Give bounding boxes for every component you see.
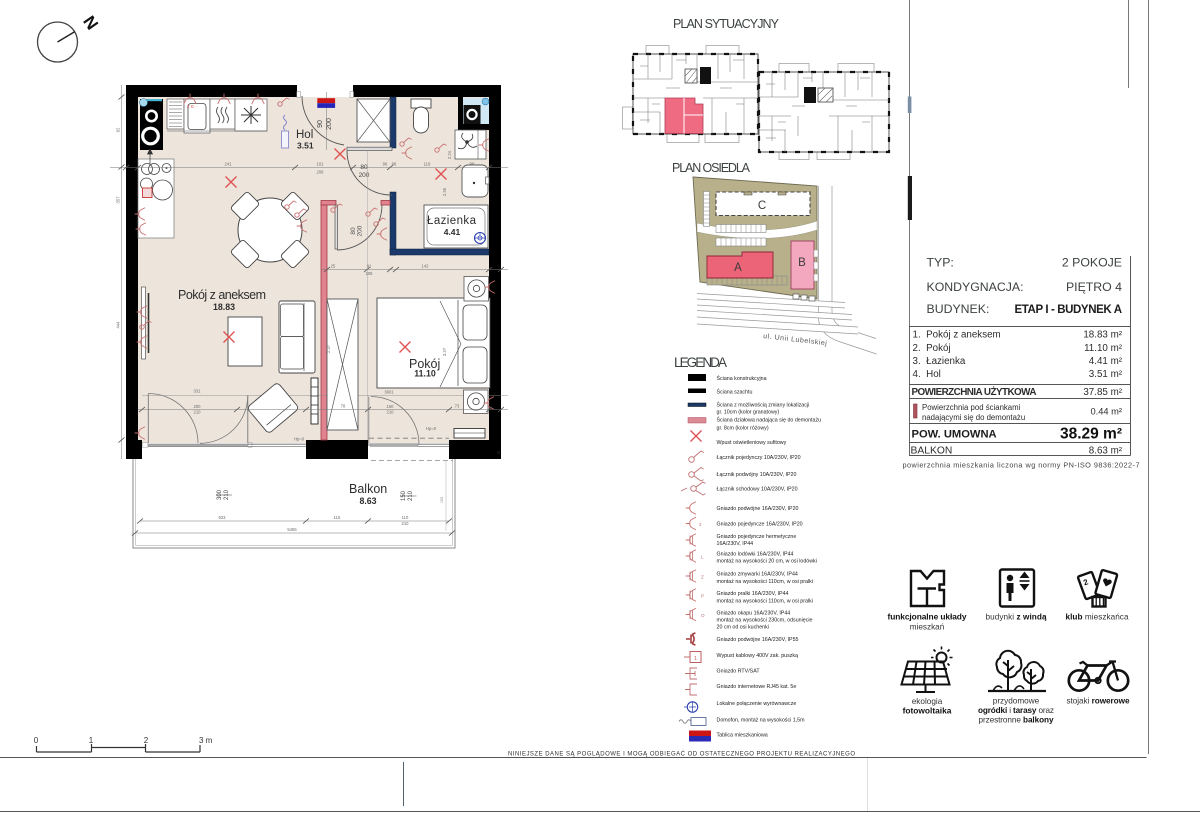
svg-text:210: 210 (194, 410, 202, 415)
svg-text:92: 92 (116, 127, 121, 132)
svg-text:Hp=0: Hp=0 (426, 426, 437, 431)
svg-text:2.24: 2.24 (447, 150, 452, 159)
svg-text:210: 210 (402, 521, 410, 526)
svg-text:4. Hol: 4. Hol (913, 369, 941, 380)
svg-text:O: O (701, 613, 705, 618)
svg-text:20 cm od osi kuchenki: 20 cm od osi kuchenki (717, 625, 769, 631)
svg-text:4.41 m²: 4.41 m² (1089, 356, 1123, 367)
svg-text:18.83 m²: 18.83 m² (1083, 330, 1122, 341)
svg-text:PLAN SYTUACYJNY: PLAN SYTUACYJNY (673, 17, 780, 31)
svg-text:gr. 8cm (kolor różowy): gr. 8cm (kolor różowy) (717, 426, 769, 432)
svg-text:0: 0 (34, 736, 39, 745)
svg-text:LEGENDA: LEGENDA (674, 355, 727, 370)
svg-text:3601: 3601 (384, 390, 394, 395)
svg-text:Tablica mieszkaniowa: Tablica mieszkaniowa (717, 733, 768, 739)
svg-text:2: 2 (144, 736, 149, 745)
svg-text:TYP:: TYP: (927, 256, 954, 270)
svg-text:241: 241 (225, 162, 233, 167)
svg-text:3. Łazienka: 3. Łazienka (913, 356, 966, 367)
svg-text:mieszkań: mieszkań (910, 623, 945, 632)
svg-text:POW. UMOWNA: POW. UMOWNA (912, 429, 997, 441)
svg-text:2.36: 2.36 (442, 187, 447, 196)
svg-text:3.37: 3.37 (442, 347, 447, 356)
svg-text:2.37: 2.37 (326, 344, 331, 353)
svg-text:Łącznik pojedynczy 10A/230V, I: Łącznik pojedynczy 10A/230V, IP20 (717, 455, 801, 461)
svg-text:A: A (734, 262, 742, 274)
svg-text:B: B (798, 257, 806, 269)
svg-text:KONDYGNACJA:: KONDYGNACJA: (927, 280, 1024, 294)
svg-text:142: 142 (422, 264, 430, 269)
svg-text:90: 90 (317, 120, 324, 128)
svg-text:8.63: 8.63 (359, 496, 376, 506)
svg-text:funkcjonalne układy: funkcjonalne układy (888, 612, 967, 622)
svg-text:z o: z o (187, 104, 194, 110)
svg-text:4.41: 4.41 (444, 227, 461, 237)
svg-text:2: 2 (699, 522, 702, 527)
svg-text:200: 200 (194, 404, 202, 409)
svg-text:Gniazdo internetowe RJ45 kat.: Gniazdo internetowe RJ45 kat. 5e (717, 684, 797, 690)
svg-text:montaż na wysokości 110cm, w o: montaż na wysokości 110cm, w osi pralki (717, 599, 813, 605)
svg-text:3.51 m²: 3.51 m² (1089, 369, 1123, 380)
svg-text:3 m: 3 m (199, 736, 213, 745)
svg-text:Gniazdo pralki 16A/230V, IP44: Gniazdo pralki 16A/230V, IP44 (717, 591, 789, 597)
svg-text:Gniazdo okapu 16A/230V, IP44: Gniazdo okapu 16A/230V, IP44 (717, 611, 791, 617)
svg-text:NINIEJSZE DANE SĄ POGLĄDOWE I: NINIEJSZE DANE SĄ POGLĄDOWE I MOGĄ ODBIE… (508, 751, 855, 758)
svg-text:Ściana szachtu: Ściana szachtu (717, 388, 753, 396)
svg-text:Gniazdo pojedyncze hermetyczne: Gniazdo pojedyncze hermetyczne (717, 534, 797, 540)
svg-text:Gniazdo podwójne 16A/230V, IP5: Gniazdo podwójne 16A/230V, IP55 (717, 637, 799, 643)
svg-text:1. Pokój z aneksem: 1. Pokój z aneksem (913, 330, 1001, 341)
svg-text:ogródki i tarasy oraz: ogródki i tarasy oraz (978, 706, 1054, 715)
svg-text:98: 98 (392, 162, 397, 167)
svg-text:210: 210 (224, 489, 230, 500)
svg-text:Powierzchnia pod ściankami: Powierzchnia pod ściankami (922, 403, 1021, 412)
svg-text:210: 210 (408, 490, 414, 501)
svg-text:C: C (758, 200, 766, 212)
svg-text:Lokalne połączenie wyrównawcze: Lokalne połączenie wyrównawcze (717, 701, 797, 707)
svg-text:37.85 m²: 37.85 m² (1083, 387, 1122, 398)
svg-text:153: 153 (440, 497, 444, 503)
svg-text:200: 200 (359, 172, 370, 179)
svg-text:331: 331 (194, 389, 202, 394)
svg-text:Gniazdo RTV/SAT: Gniazdo RTV/SAT (717, 669, 761, 675)
svg-text:powierzchnia mieszkania liczon: powierzchnia mieszkania liczona wg normy… (903, 461, 1140, 470)
svg-text:Domofon, montaż na wysokości 1: Domofon, montaż na wysokości 1,5m (717, 718, 806, 724)
svg-text:stojaki rowerowe: stojaki rowerowe (1067, 697, 1130, 706)
svg-text:110: 110 (402, 515, 409, 520)
svg-text:nadającymi się do demontażu: nadającymi się do demontażu (922, 413, 1025, 422)
svg-text:klub mieszkańca: klub mieszkańca (1066, 613, 1129, 622)
svg-text:5465: 5465 (287, 527, 297, 532)
svg-text:80: 80 (360, 164, 368, 171)
svg-text:2. Pokój: 2. Pokój (913, 343, 951, 354)
svg-text:Wypust kablowy 400V zak. puszk: Wypust kablowy 400V zak. puszką (717, 653, 799, 659)
svg-text:Gniazdo pojedyncze 16A/230V, I: Gniazdo pojedyncze 16A/230V, IP20 (717, 522, 803, 528)
svg-text:ETAP I - BUDYNEK A: ETAP I - BUDYNEK A (1015, 304, 1123, 316)
svg-text:PIĘTRO 4: PIĘTRO 4 (1066, 280, 1122, 294)
svg-text:210: 210 (387, 410, 395, 415)
svg-text:Łazienka: Łazienka (427, 215, 477, 227)
svg-text:Ściana z możliwością zmiany lo: Ściana z możliwością zmiany lokalizacji (717, 401, 810, 409)
svg-text:115: 115 (334, 515, 341, 520)
svg-text:Łącznik podwójny 10A/230V, IP2: Łącznik podwójny 10A/230V, IP20 (717, 472, 797, 478)
svg-text:montaż na wysokości 110cm, w o: montaż na wysokości 110cm, w osi pralki (717, 579, 813, 585)
svg-text:Pokój z aneksem: Pokój z aneksem (178, 288, 266, 302)
svg-text:Gniazdo podwójne 16A/230V, IP2: Gniazdo podwójne 16A/230V, IP20 (717, 506, 799, 512)
svg-text:150: 150 (387, 404, 395, 409)
svg-text:Wpust oświetleniowy sufitowy: Wpust oświetleniowy sufitowy (717, 440, 787, 446)
svg-text:78: 78 (341, 404, 346, 409)
svg-text:2 POKOJE: 2 POKOJE (1062, 256, 1122, 270)
svg-text:8.63 m²: 8.63 m² (1089, 445, 1123, 456)
svg-text:150: 150 (401, 490, 407, 501)
svg-text:11.10: 11.10 (414, 369, 436, 379)
svg-text:200: 200 (326, 118, 333, 130)
svg-text:przestronne balkony: przestronne balkony (979, 716, 1054, 725)
svg-text:1: 1 (89, 736, 94, 745)
svg-text:38.29 m²: 38.29 m² (1060, 426, 1122, 443)
svg-text:119: 119 (424, 162, 431, 167)
svg-text:L: L (701, 555, 704, 560)
svg-text:Hp=0: Hp=0 (294, 437, 305, 442)
svg-text:fotowoltaika: fotowoltaika (903, 706, 952, 716)
svg-text:montaż na wysokości 230cm, ods: montaż na wysokości 230cm, odsunięcie (717, 618, 813, 624)
svg-text:P: P (701, 594, 704, 599)
svg-text:206: 206 (366, 271, 374, 276)
svg-text:200: 200 (357, 225, 364, 236)
svg-text:25: 25 (331, 264, 336, 269)
svg-text:206: 206 (317, 170, 325, 175)
svg-text:Ściana działowa nadająca się d: Ściana działowa nadająca się do demontaż… (717, 416, 822, 424)
svg-text:Gniazdo zmywarki 16A/230V, IP4: Gniazdo zmywarki 16A/230V, IP44 (717, 572, 798, 578)
svg-text:101: 101 (317, 162, 325, 167)
svg-text:Gniazdo lodówki 16A/230V, IP44: Gniazdo lodówki 16A/230V, IP44 (717, 552, 794, 558)
svg-text:PLAN OSIEDLA: PLAN OSIEDLA (672, 161, 751, 175)
svg-text:96: 96 (383, 162, 388, 167)
svg-text:3.51: 3.51 (297, 141, 314, 151)
svg-text:Ściana konstrukcyjna: Ściana konstrukcyjna (717, 374, 767, 382)
svg-text:444: 444 (116, 321, 121, 329)
svg-text:Z: Z (701, 575, 704, 580)
svg-text:11.10 m²: 11.10 m² (1084, 343, 1123, 354)
svg-text:budynki z windą: budynki z windą (986, 613, 1047, 622)
svg-text:16A/230V, IP44: 16A/230V, IP44 (717, 541, 754, 547)
svg-text:POWIERZCHNIA UŻYTKOWA: POWIERZCHNIA UŻYTKOWA (912, 387, 1037, 398)
svg-text:Balkon: Balkon (349, 482, 387, 496)
svg-text:98: 98 (470, 162, 475, 167)
svg-text:gr. 10cm (kolor granatowy): gr. 10cm (kolor granatowy) (717, 410, 780, 416)
svg-text:1: 1 (694, 656, 697, 662)
svg-text:18.83: 18.83 (213, 302, 235, 312)
svg-text:Hol: Hol (296, 129, 313, 141)
svg-text:300: 300 (217, 489, 223, 500)
svg-text:357: 357 (116, 196, 121, 204)
svg-text:0.44 m²: 0.44 m² (1090, 407, 1122, 417)
svg-text:przydomowe: przydomowe (993, 697, 1040, 706)
svg-text:Łącznik schodowy 10A/230V, IP2: Łącznik schodowy 10A/230V, IP20 (717, 487, 798, 493)
svg-text:923: 923 (219, 515, 227, 520)
svg-text:BALKON: BALKON (911, 445, 953, 456)
svg-text:73: 73 (455, 404, 460, 409)
svg-text:montaż na wysokości 20 cm, w o: montaż na wysokości 20 cm, w osi lodówki (717, 559, 817, 565)
svg-text:BUDYNEK:: BUDYNEK: (927, 302, 990, 316)
